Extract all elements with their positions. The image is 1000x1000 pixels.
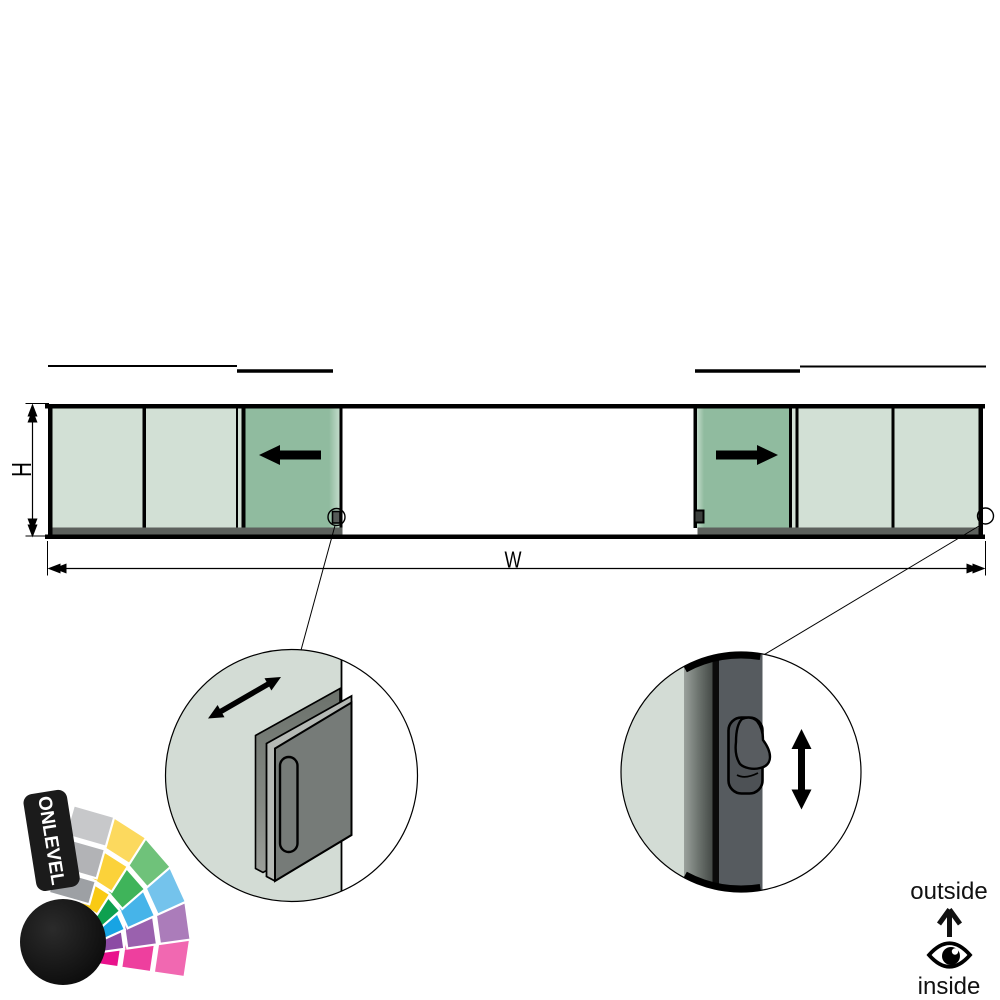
svg-text:outside: outside xyxy=(910,878,987,905)
svg-text:inside: inside xyxy=(918,973,981,1000)
svg-text:H: H xyxy=(6,462,37,477)
svg-text:W: W xyxy=(505,547,522,573)
